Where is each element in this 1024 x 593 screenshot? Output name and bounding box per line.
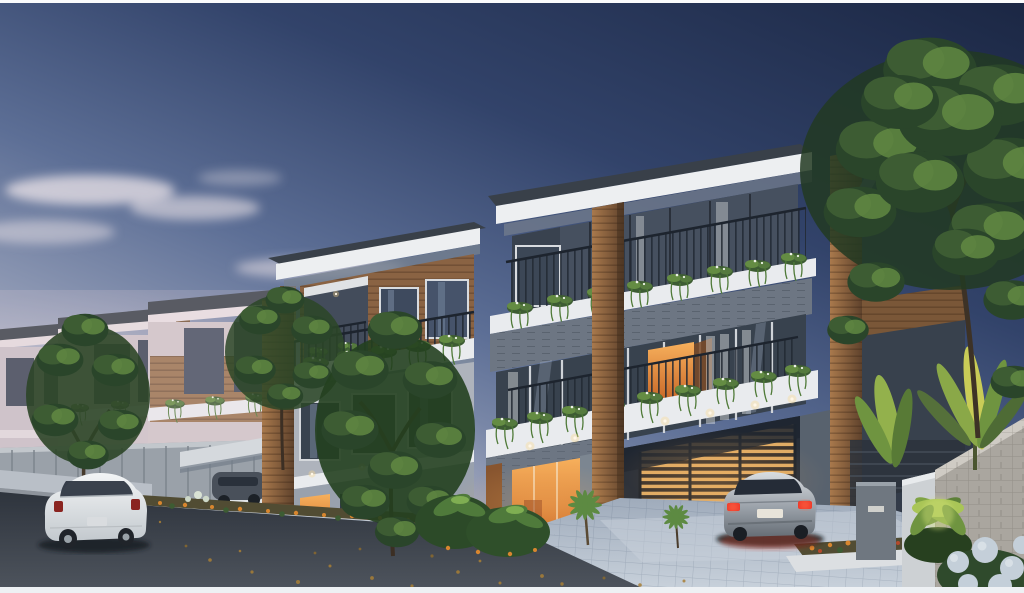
hatchback-taillight [131, 499, 140, 510]
stone-pedestal [856, 482, 896, 560]
hatchback-taillight [54, 501, 63, 512]
architectural-render [0, 0, 1024, 593]
scene-canvas [0, 0, 1024, 593]
sedan-rear-window [734, 479, 802, 495]
